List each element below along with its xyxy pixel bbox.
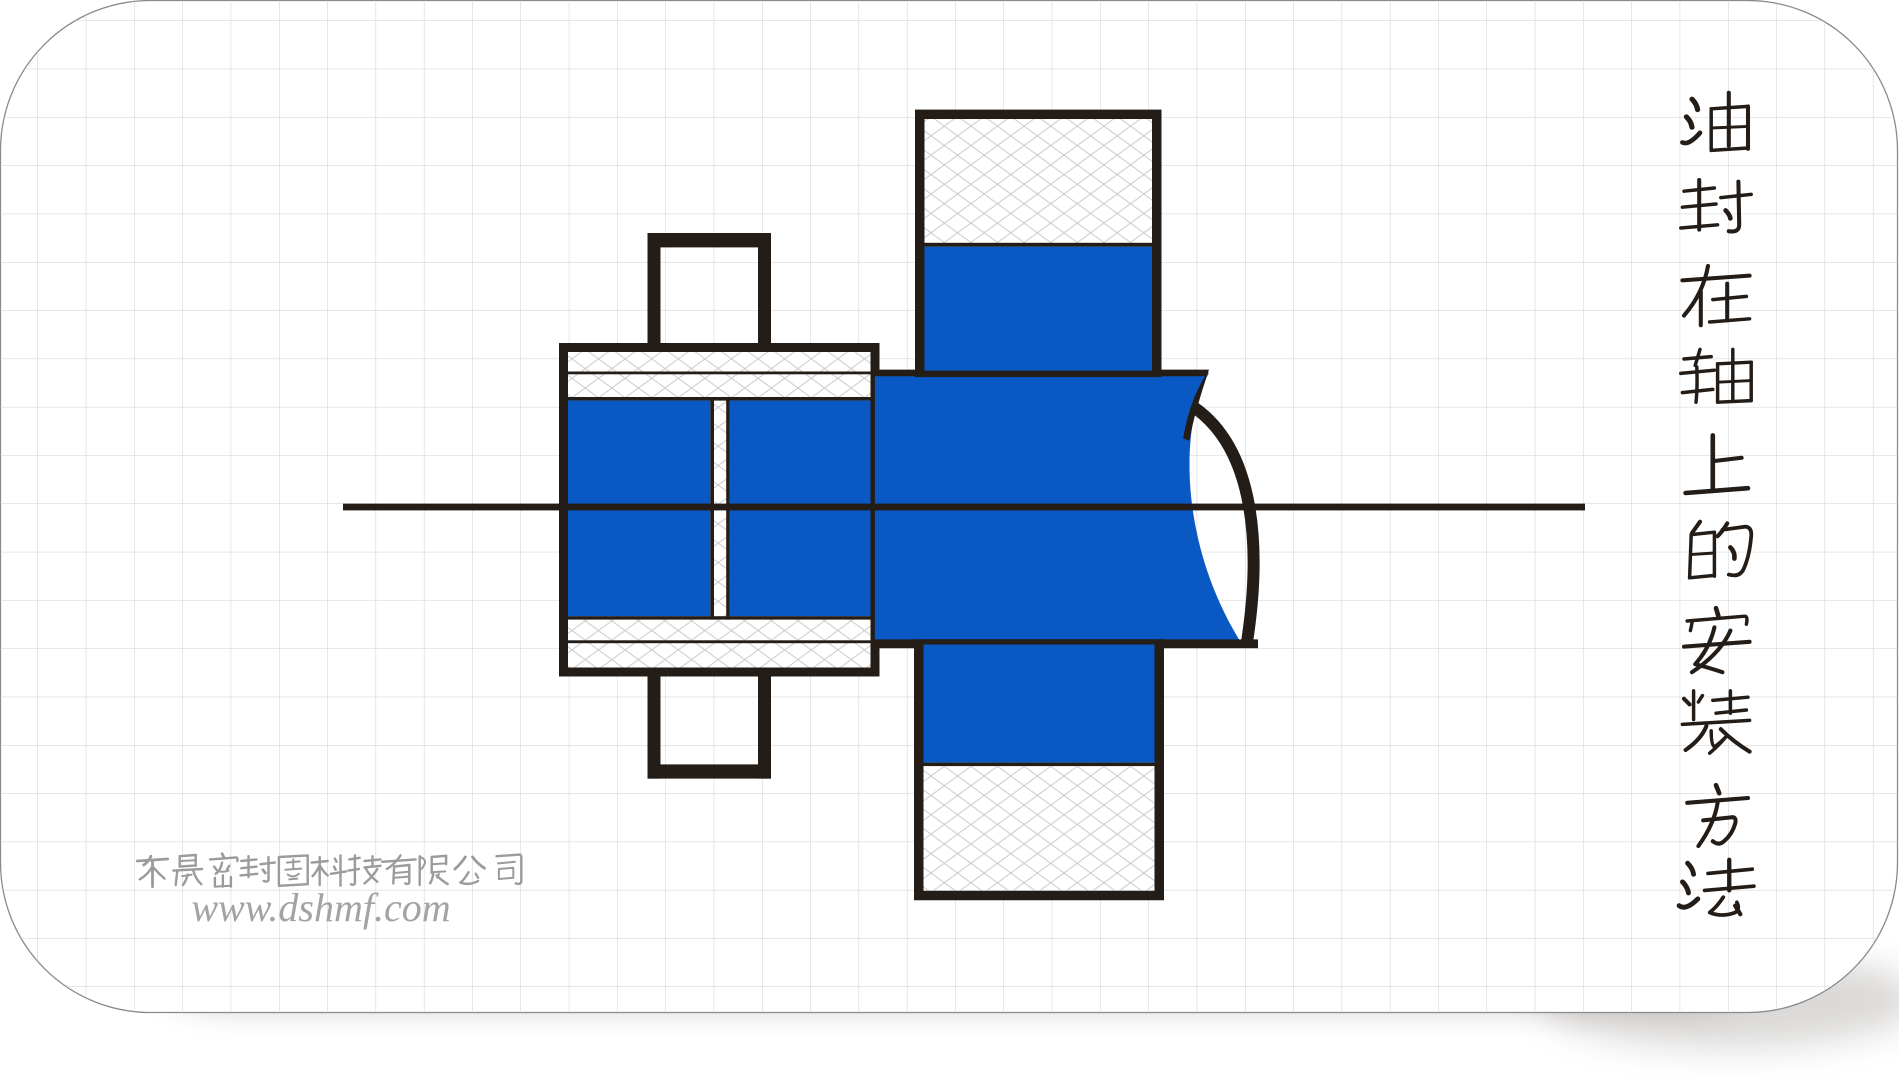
svg-text:www.dshmf.com: www.dshmf.com bbox=[191, 885, 450, 930]
